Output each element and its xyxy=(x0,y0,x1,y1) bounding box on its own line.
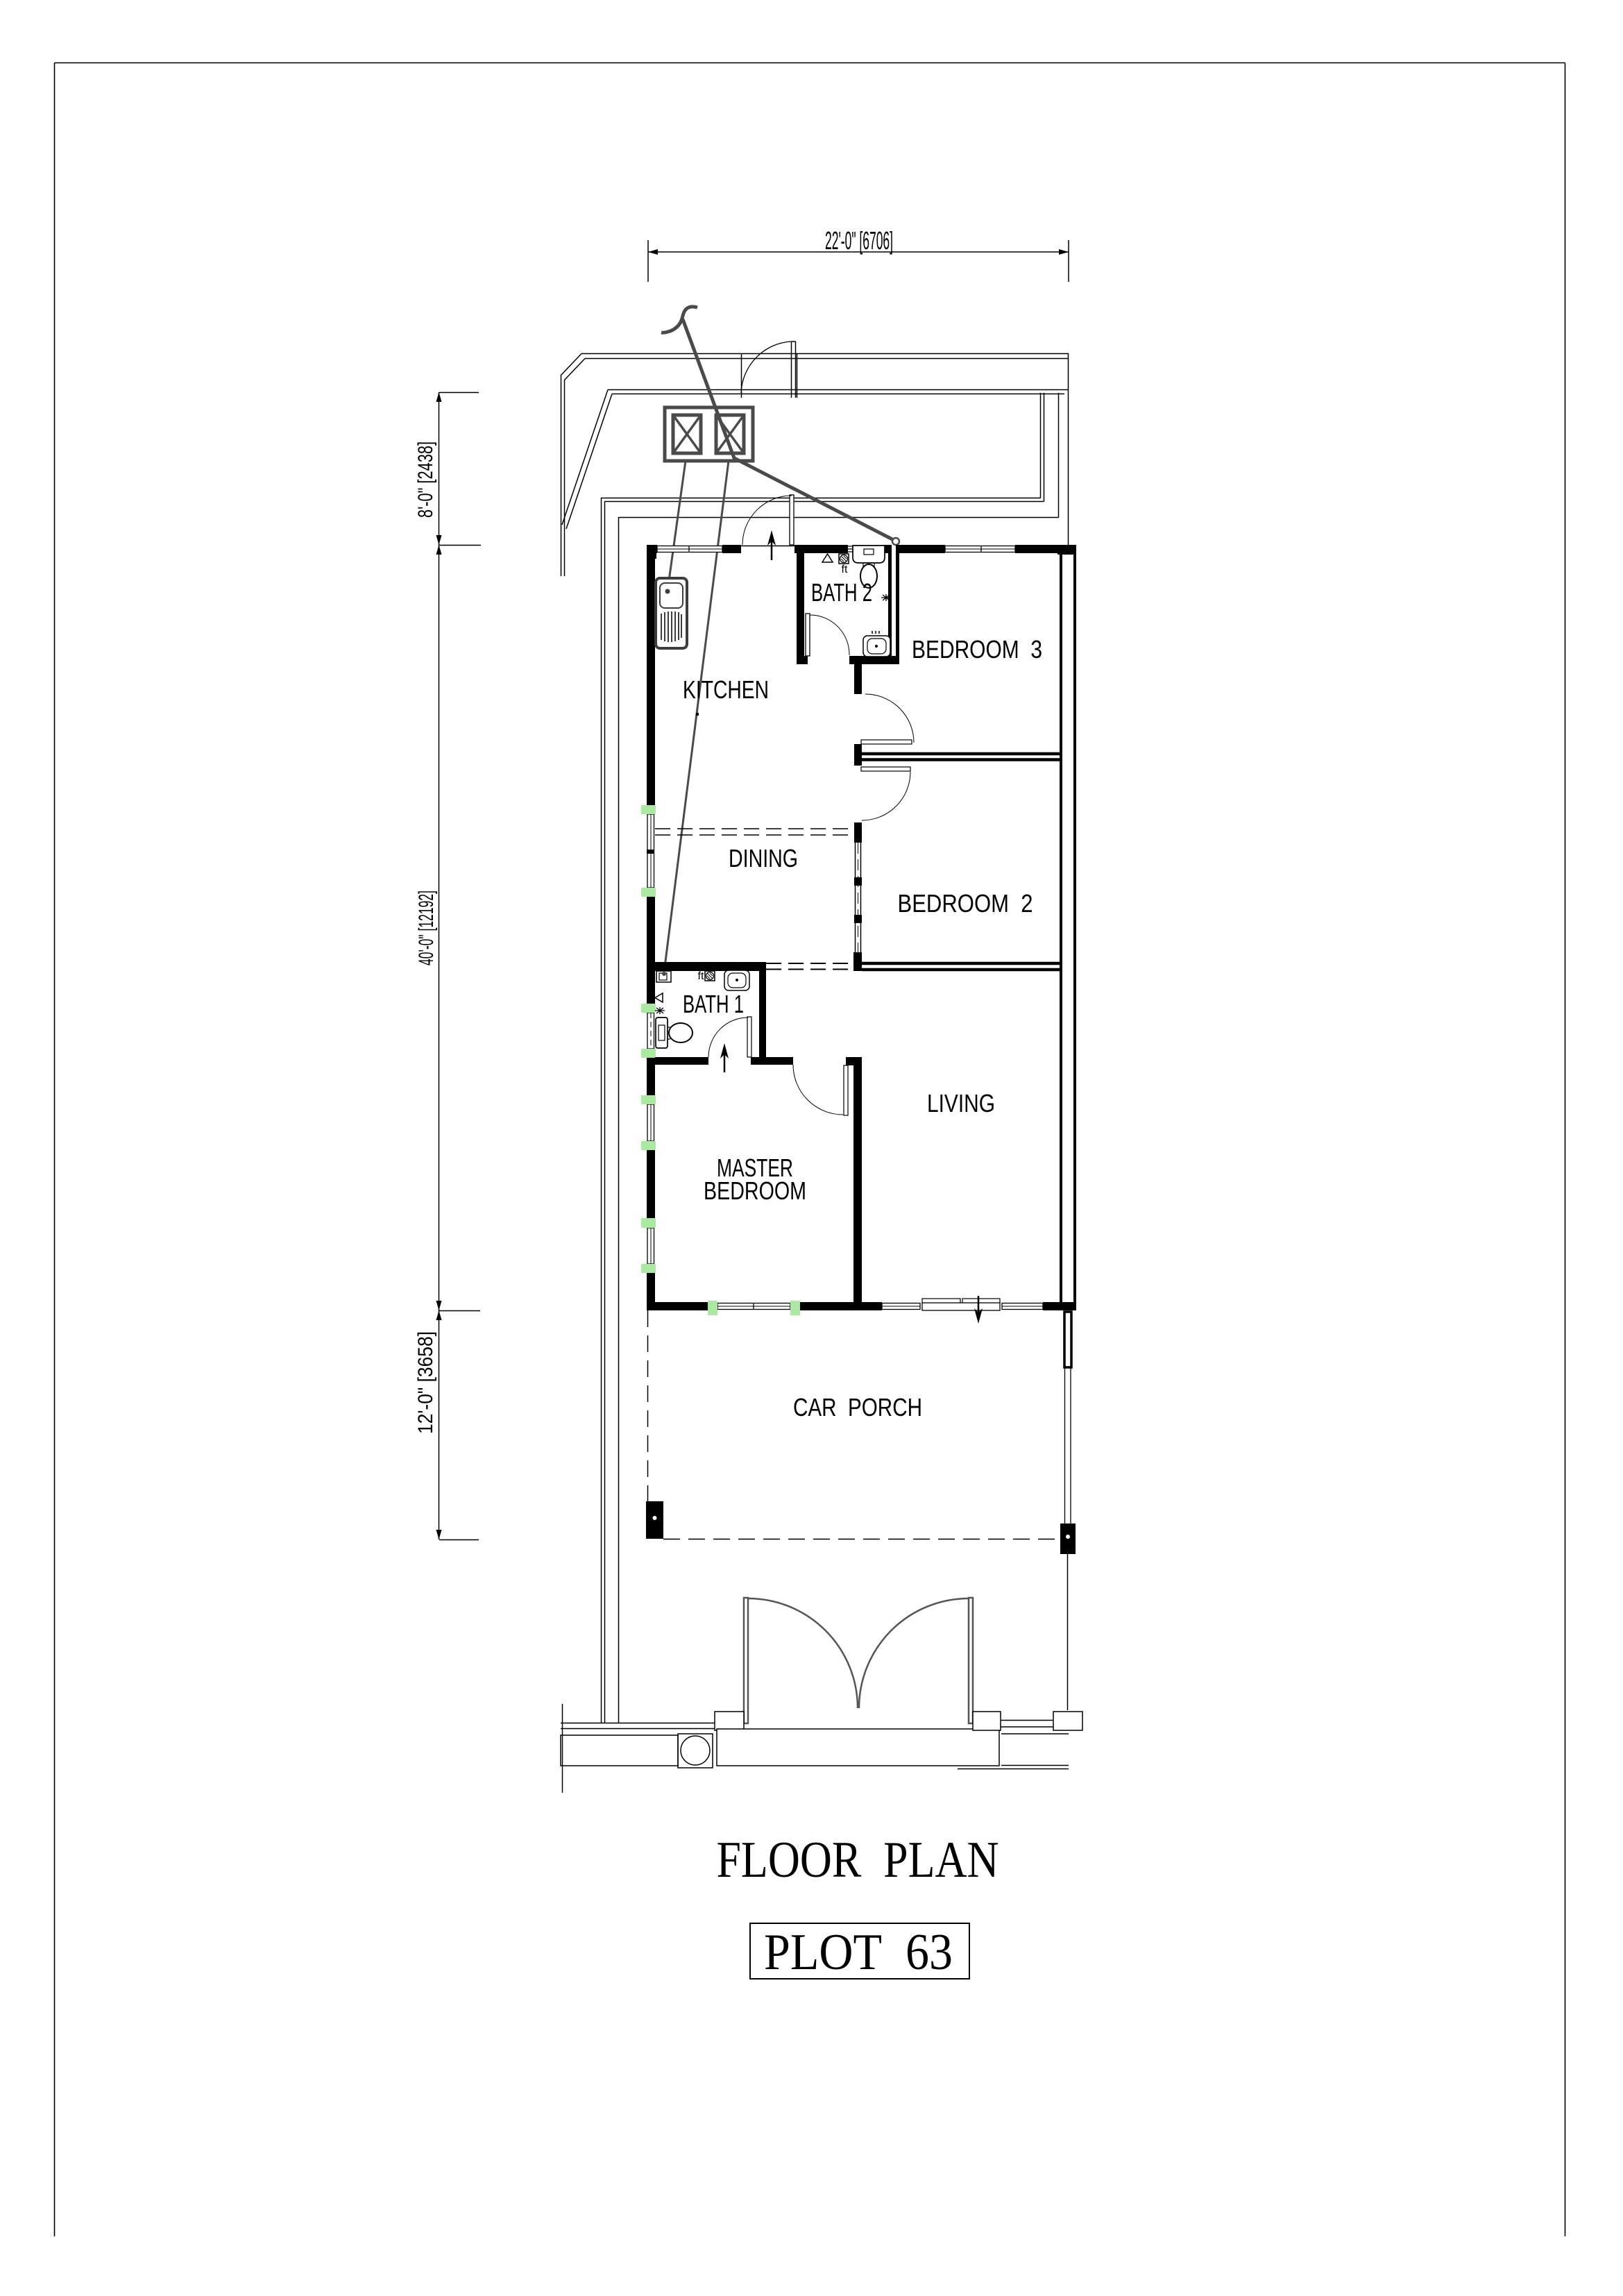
svg-text:BATH 1: BATH 1 xyxy=(683,990,744,1018)
svg-text:PLOT 63: PLOT 63 xyxy=(764,1924,953,1981)
svg-text:KITCHEN: KITCHEN xyxy=(683,675,769,704)
svg-text:BEDROOM: BEDROOM xyxy=(704,1176,806,1205)
svg-text:DINING: DINING xyxy=(729,844,798,872)
svg-text:40'-0" [12192]: 40'-0" [12192] xyxy=(415,890,438,965)
svg-text:BEDROOM 2: BEDROOM 2 xyxy=(898,889,1033,918)
svg-text:12'-0" [3658]: 12'-0" [3658] xyxy=(414,1331,437,1434)
svg-text:LIVING: LIVING xyxy=(927,1089,995,1117)
svg-text:BATH 2: BATH 2 xyxy=(811,578,872,607)
svg-text:ft: ft xyxy=(842,564,848,575)
svg-text:22'-0" [6706]: 22'-0" [6706] xyxy=(825,226,893,255)
svg-text:BEDROOM 3: BEDROOM 3 xyxy=(912,635,1042,664)
svg-text:FLOOR PLAN: FLOOR PLAN xyxy=(717,1832,999,1889)
svg-text:CAR PORCH: CAR PORCH xyxy=(793,1393,922,1421)
svg-text:ft: ft xyxy=(698,970,704,982)
svg-text:8'-0" [2438]: 8'-0" [2438] xyxy=(414,441,437,518)
